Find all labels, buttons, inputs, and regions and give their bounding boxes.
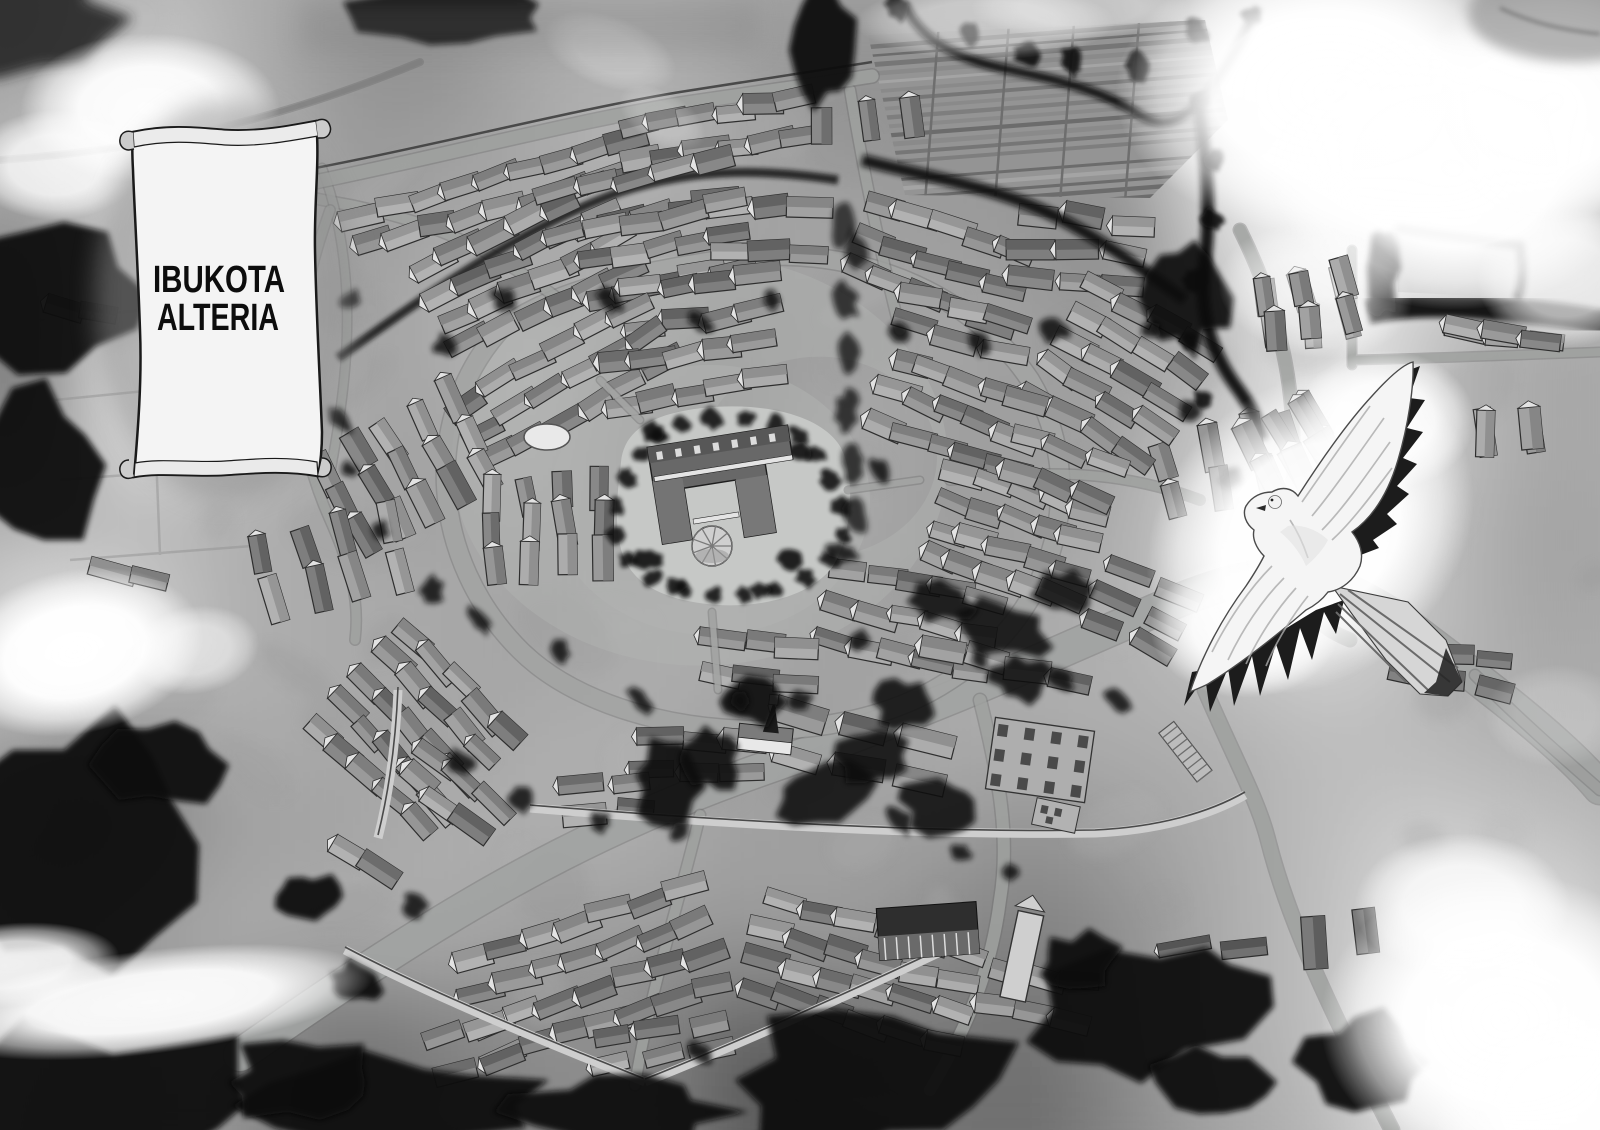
svg-text:ALTERIA: ALTERIA [157, 297, 279, 339]
svg-text:IBUKOTA: IBUKOTA [153, 259, 285, 301]
